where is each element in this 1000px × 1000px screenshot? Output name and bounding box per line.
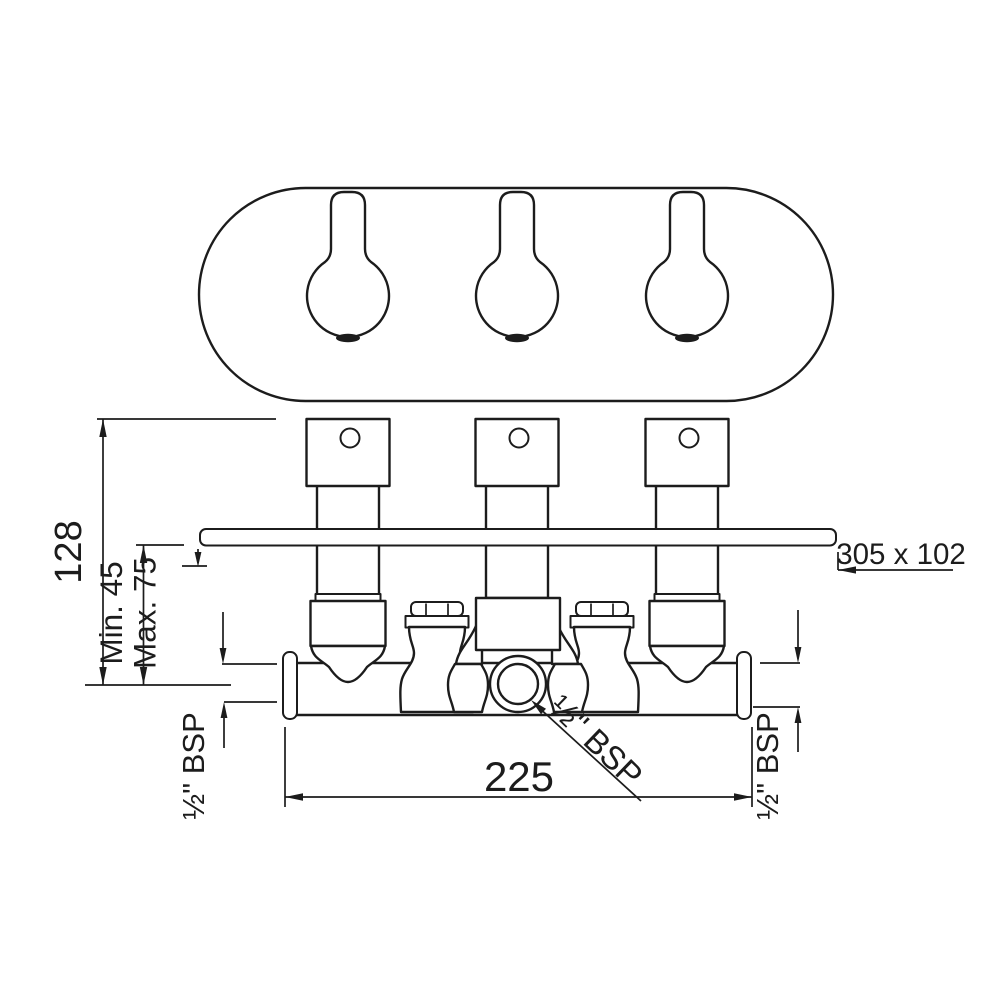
dim-inlet-right: ½" BSP bbox=[750, 610, 801, 820]
arrowhead bbox=[221, 702, 228, 718]
hex-flange bbox=[571, 616, 634, 628]
center-foot-left bbox=[448, 664, 488, 712]
faceplate-front-view bbox=[199, 188, 833, 401]
pipe-end-cap-left bbox=[283, 652, 297, 719]
arrowhead bbox=[220, 648, 227, 664]
dim-text-depth-min: Min. 45 bbox=[93, 561, 129, 664]
dim-text-faceplate-size: 305 x 102 bbox=[836, 538, 966, 571]
handle-right-indicator bbox=[675, 334, 699, 342]
hub-middle-screw-hole bbox=[510, 429, 529, 448]
valve-section-view bbox=[200, 419, 836, 719]
arrowhead bbox=[195, 552, 202, 567]
dim-faceplate-size: 305 x 102 bbox=[836, 538, 966, 574]
hex-nut bbox=[576, 602, 628, 616]
handle-middle-indicator bbox=[505, 334, 529, 342]
label-inlet-left-bsp: ½" BSP bbox=[176, 712, 211, 820]
dim-wall-depth: Min. 45 Max. 75 bbox=[93, 545, 207, 685]
handle-left-indicator bbox=[336, 334, 360, 342]
dim-text-inlet-centres: 225 bbox=[484, 753, 554, 800]
arrowhead bbox=[99, 667, 106, 685]
valve-installation-diagram: 128 Min. 45 Max. 75 305 x 102 ½" BSP bbox=[0, 0, 1000, 1000]
label-inlet-right-bsp: ½" BSP bbox=[750, 712, 785, 820]
hex-flange bbox=[406, 616, 469, 628]
cartridge-left-collar bbox=[311, 601, 386, 646]
hub-right-screw-hole bbox=[680, 429, 699, 448]
center-body-block bbox=[476, 598, 560, 650]
arrowhead bbox=[99, 419, 106, 437]
dim-text-depth-max: Max. 75 bbox=[127, 557, 163, 669]
dim-inlet-centres: 225 bbox=[285, 727, 752, 807]
cartridge-right-collar bbox=[650, 601, 725, 646]
arrowhead bbox=[285, 793, 303, 800]
hex-nut bbox=[411, 602, 463, 616]
hub-left-screw-hole bbox=[341, 429, 360, 448]
dim-inlet-left: ½" BSP bbox=[176, 612, 277, 820]
wall-plate-side bbox=[200, 529, 836, 546]
pipe-end-cap-right bbox=[737, 652, 751, 719]
outlet-port-inner bbox=[498, 664, 538, 704]
arrowhead bbox=[795, 707, 802, 723]
arrowhead bbox=[795, 647, 802, 663]
technical-drawing-page: 128 Min. 45 Max. 75 305 x 102 ½" BSP bbox=[0, 0, 1000, 1000]
dim-text-overall-height: 128 bbox=[48, 520, 90, 583]
